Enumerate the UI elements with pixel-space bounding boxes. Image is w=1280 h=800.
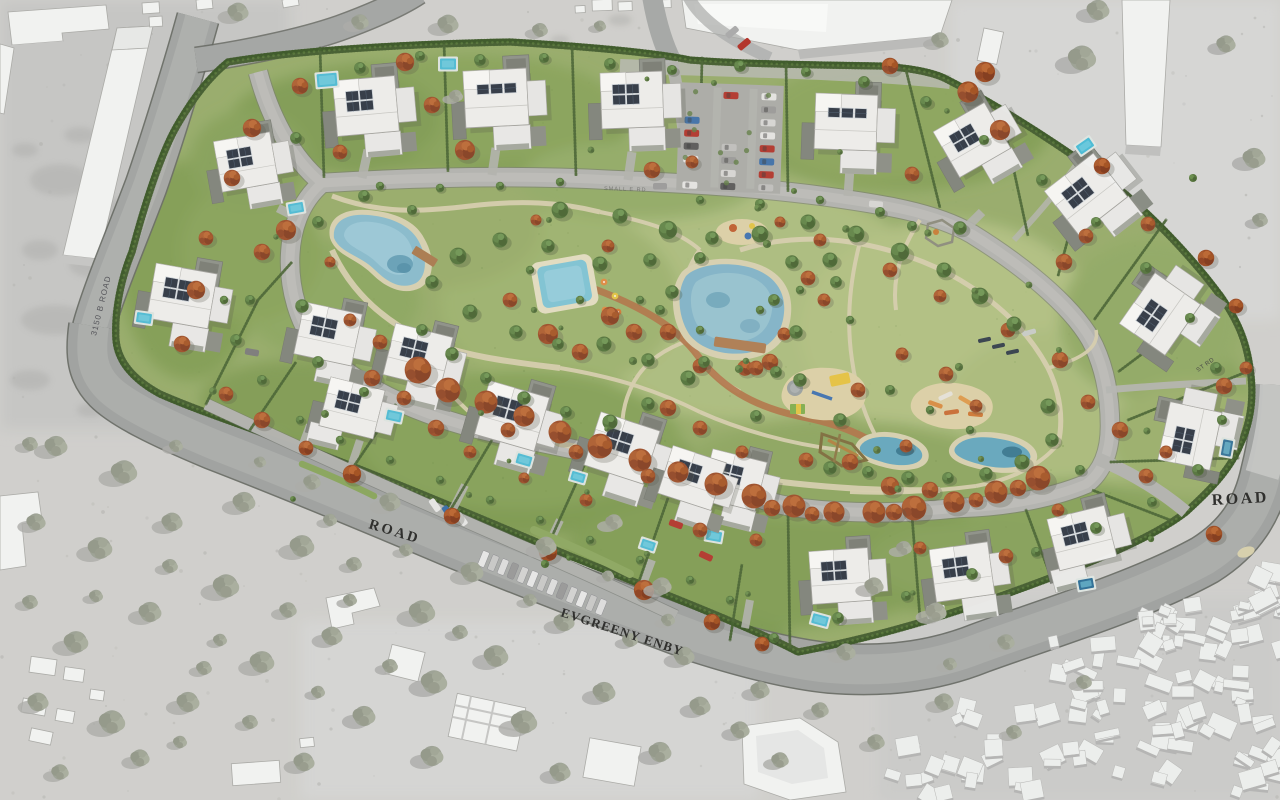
svg-text:ROAD: ROAD [1211,489,1269,509]
